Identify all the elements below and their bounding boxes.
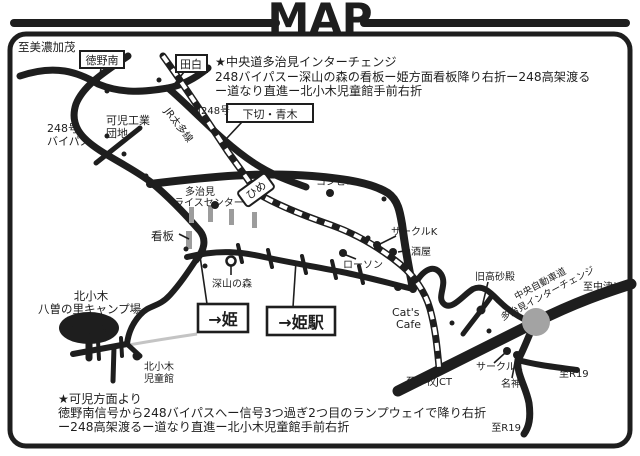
tick: [302, 256, 306, 273]
junction-dot: [487, 329, 492, 334]
junction-dot: [175, 94, 180, 99]
cats-cafe-dot: [394, 283, 402, 291]
jidokan-dot: [133, 352, 142, 361]
note-top-line-3: ー道なり直進ー北小木児童館手前右折: [215, 83, 422, 98]
map-title: MAP: [267, 0, 372, 43]
sakaya-label: 酒屋: [411, 246, 431, 258]
tick: [332, 261, 336, 278]
circle-k-north-label: サークルK: [391, 226, 438, 238]
jidokan-label-1: 北小木: [144, 361, 174, 373]
cats-cafe-label-2: Cafe: [396, 318, 421, 331]
rice-center-label-1: 多治見: [185, 185, 215, 198]
jidokan-label-2: 児童館: [144, 372, 174, 385]
to-hime-label: →姫: [208, 310, 237, 329]
to-hime-leader: [200, 256, 207, 304]
route248-label-1: 248号: [47, 122, 79, 135]
route248-label-2: バイパス: [47, 135, 91, 148]
to-nakatsugawa-label: 至中津川: [583, 280, 623, 293]
konbini-label: コンビニ: [316, 176, 356, 188]
meishin-dot: [513, 351, 521, 359]
tick: [98, 341, 99, 359]
rice-center-label-2: ライスセンター: [174, 197, 244, 209]
circle-k-south-label: サークルK: [476, 361, 523, 373]
meishin-label: 名神: [501, 377, 521, 390]
miyama-ring: [227, 257, 236, 266]
to-r19-south-label: 至R19: [491, 422, 521, 434]
lawson-leader: [346, 255, 356, 259]
takasagoden-dot: [477, 306, 486, 315]
junction-dot: [122, 152, 127, 157]
junction-dot: [366, 236, 371, 241]
tokuno-minami-label: 徳野南: [86, 54, 119, 67]
map-canvas: MAP: [0, 0, 640, 456]
kani-kogyo-label-1: 可児工業: [106, 114, 150, 127]
signboard-bar: [229, 209, 234, 225]
junction-dot: [157, 78, 162, 83]
junction-dot: [450, 321, 455, 326]
to-hime-station-leader: [293, 261, 296, 307]
junction-dot: [203, 264, 208, 269]
note-bottom-line-2: 徳野南信号から248バイパスへー信号3つ過ぎ2つ目のランプウェイで降り右折: [58, 405, 486, 420]
tokuno-minami-tail: [99, 68, 101, 82]
shimogiri-tail: [227, 122, 242, 138]
road-rampway-branch: [463, 297, 491, 334]
tashiro-label: 田白: [180, 57, 202, 71]
roads: [20, 56, 631, 434]
note-bottom-line-1: ★可児方面より: [58, 391, 142, 406]
shimogiri-aoki-label: 下切・青木: [243, 108, 298, 121]
kani-kogyo-label-2: 団地: [106, 127, 128, 140]
to-komaki-jct-label: 至小牧JCT: [406, 375, 453, 388]
tick: [238, 245, 242, 262]
interchange-circle: [522, 308, 550, 336]
note-top-line-1: ★中央道多治見インターチェンジ: [215, 54, 397, 69]
junction-dot: [144, 174, 149, 179]
circle-k-north-dot: [373, 241, 381, 249]
road-camp-south: [113, 347, 114, 381]
takasagoden-label: 旧高砂殿: [475, 270, 515, 283]
tick: [121, 338, 122, 356]
signboard-bar: [252, 212, 257, 228]
to-hime-station-label: →姫駅: [278, 313, 324, 332]
koko-marker-group: ココ!: [59, 312, 119, 344]
campground-label-2: 八曽の里キャンプ場: [38, 302, 142, 316]
access-map: MAP: [0, 0, 640, 456]
note-bottom-line-3: ー248高架渡るー道なり直進ー北小木児童館手前右折: [58, 419, 349, 434]
junction-dot: [105, 89, 110, 94]
junction-dot: [184, 247, 189, 252]
konbini-dot: [326, 189, 334, 197]
map-labels: 至美濃加茂 248号 バイパス 可児工業 団地 JR太多線 旧248号 多治見 …: [18, 40, 623, 434]
kyu248-label: 旧248号: [191, 105, 230, 117]
to-r19-east-label: 至R19: [559, 368, 589, 380]
junction-dot: [382, 197, 387, 202]
note-top-line-2: 248バイパスー深山の森の看板ー姫方面看板降り右折ー248高架渡る: [215, 69, 590, 84]
signboard-bar: [186, 231, 192, 249]
campground-label-1: 北小木: [74, 289, 109, 303]
lawson-label: ローソン: [343, 260, 383, 271]
miyama-label: 深山の森: [212, 277, 252, 290]
tick: [268, 250, 272, 267]
sakaya-dot: [389, 248, 397, 256]
route-notes: ★中央道多治見インターチェンジ 248バイパスー深山の森の看板ー姫方面看板降り右…: [58, 54, 590, 434]
lawson-dot: [339, 249, 347, 257]
junction-dot: [161, 190, 166, 195]
junction-dot: [85, 76, 90, 81]
to-minokamo-label: 至美濃加茂: [18, 40, 76, 54]
signboard-bar: [189, 207, 194, 223]
kanban-label: 看板: [151, 229, 174, 243]
